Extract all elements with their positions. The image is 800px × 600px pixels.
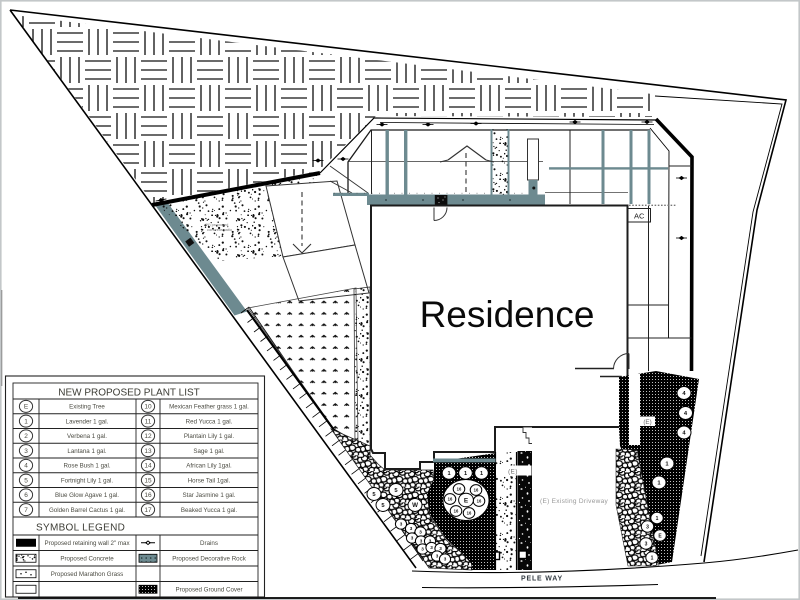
svg-text:13: 13 [144, 448, 152, 455]
svg-text:Proposed Ground Cover: Proposed Ground Cover [175, 586, 242, 593]
svg-text:Lantana 1 gal.: Lantana 1 gal. [67, 448, 107, 455]
svg-text:(E): (E) [643, 419, 651, 426]
svg-text:3: 3 [420, 539, 423, 544]
svg-text:1: 1 [447, 471, 450, 477]
svg-text:SYMBOL LEGEND: SYMBOL LEGEND [36, 523, 125, 534]
svg-text:Blue Glow Agave 1 gal.: Blue Glow Agave 1 gal. [55, 492, 119, 499]
svg-text:concrete patio: concrete patio [207, 227, 233, 232]
svg-text:Verbena 1 gal.: Verbena 1 gal. [67, 433, 107, 440]
svg-text:14: 14 [144, 463, 152, 470]
svg-text:16: 16 [454, 509, 459, 514]
svg-text:Star Jasmine 1 gal.: Star Jasmine 1 gal. [183, 492, 236, 499]
svg-text:Plantain Lily 1 gal.: Plantain Lily 1 gal. [184, 433, 234, 440]
svg-text:E: E [464, 497, 469, 504]
svg-text:4: 4 [24, 463, 28, 470]
svg-text:Rose Bush 1 gal.: Rose Bush 1 gal. [63, 463, 110, 470]
svg-text:3: 3 [400, 522, 403, 527]
svg-text:Beaked Yucca 1 gal.: Beaked Yucca 1 gal. [181, 507, 238, 514]
svg-text:1: 1 [651, 555, 654, 561]
svg-text:1: 1 [656, 516, 659, 522]
svg-text:3: 3 [645, 541, 648, 547]
svg-text:16: 16 [477, 499, 482, 504]
svg-text:2: 2 [24, 433, 28, 440]
svg-text:12: 12 [144, 433, 152, 440]
svg-text:W: W [412, 502, 418, 509]
svg-text:10: 10 [144, 404, 152, 411]
svg-text:Existing Tree: Existing Tree [69, 404, 105, 411]
svg-text:Proposed Marathon Grass: Proposed Marathon Grass [51, 571, 124, 578]
svg-text:(E) Existing Driveway: (E) Existing Driveway [540, 498, 609, 505]
svg-text:3: 3 [419, 530, 422, 535]
svg-text:1: 1 [464, 471, 467, 477]
svg-text:7: 7 [24, 507, 28, 514]
svg-text:Proposed retaining wall 2" max: Proposed retaining wall 2" max [44, 540, 130, 547]
svg-text:17: 17 [144, 507, 152, 514]
svg-text:5: 5 [24, 477, 28, 484]
svg-text:16: 16 [467, 511, 472, 516]
svg-text:1: 1 [24, 418, 28, 425]
svg-text:Drains: Drains [200, 540, 218, 547]
svg-text:Horse Tail 1gal.: Horse Tail 1gal. [188, 477, 231, 484]
svg-text:16: 16 [448, 497, 453, 502]
svg-text:3: 3 [444, 557, 447, 562]
svg-text:Mexican Feather grass 1 gal.: Mexican Feather grass 1 gal. [169, 404, 249, 411]
svg-text:Lavender 1 gal.: Lavender 1 gal. [66, 418, 109, 425]
svg-text:Proposed Decorative Rock: Proposed Decorative Rock [172, 555, 247, 562]
svg-text:African Lily 1gal.: African Lily 1gal. [186, 463, 232, 470]
svg-text:3: 3 [439, 546, 442, 551]
svg-text:Residence: Residence [420, 294, 595, 335]
svg-text:11: 11 [145, 418, 152, 425]
svg-text:6: 6 [24, 492, 28, 499]
svg-text:Sage 1 gal.: Sage 1 gal. [193, 448, 225, 455]
svg-text:3: 3 [24, 448, 28, 455]
svg-text:Golden Barrel Cactus 1 gal.: Golden Barrel Cactus 1 gal. [49, 507, 125, 514]
svg-text:3: 3 [430, 545, 433, 550]
svg-text:3: 3 [421, 547, 424, 552]
svg-text:1: 1 [480, 471, 483, 477]
svg-text:15: 15 [144, 477, 152, 484]
svg-text:3: 3 [410, 526, 413, 531]
svg-text:NEW PROPOSED PLANT LIST: NEW PROPOSED PLANT LIST [58, 388, 200, 399]
svg-text:3: 3 [436, 554, 439, 559]
svg-text:Fortnight Lily 1 gal.: Fortnight Lily 1 gal. [61, 477, 114, 484]
svg-text:3: 3 [411, 536, 414, 541]
svg-text:16: 16 [474, 488, 479, 493]
svg-text:16: 16 [144, 492, 152, 499]
svg-text:PELE WAY: PELE WAY [521, 576, 563, 583]
svg-text:E: E [24, 404, 29, 411]
svg-text:Proposed Concrete: Proposed Concrete [60, 555, 114, 562]
svg-text:3: 3 [646, 524, 649, 530]
svg-text:(E): (E) [508, 469, 518, 476]
svg-text:Red Yucca 1 gal.: Red Yucca 1 gal. [186, 418, 233, 425]
svg-text:AC: AC [634, 212, 645, 221]
svg-text:16: 16 [457, 487, 462, 492]
